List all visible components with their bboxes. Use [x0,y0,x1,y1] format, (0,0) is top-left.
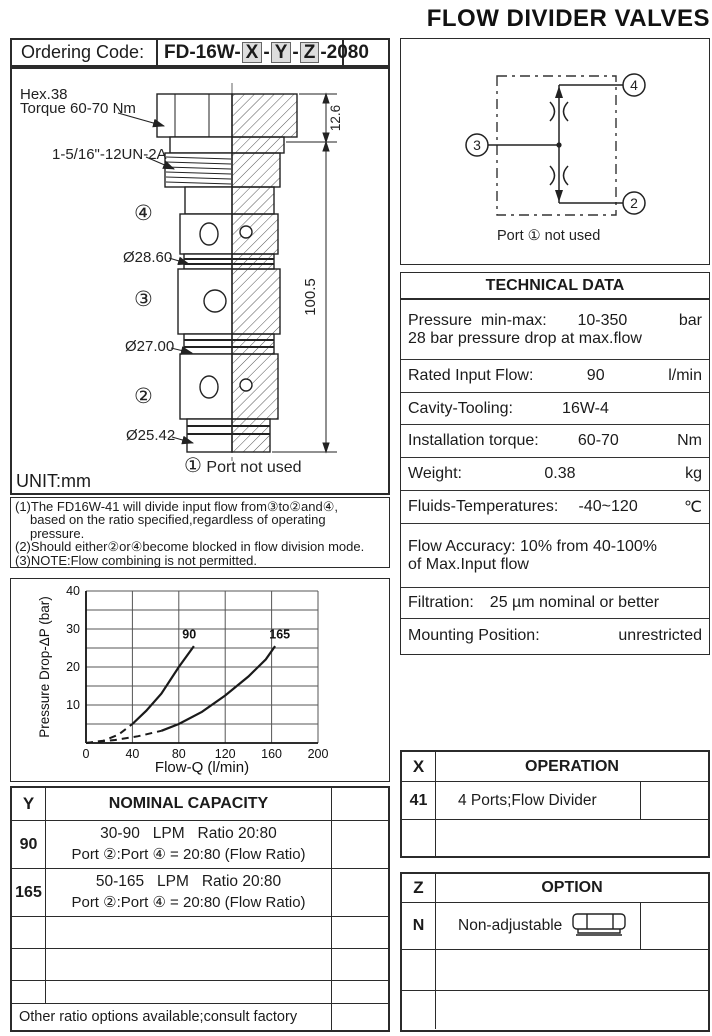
y-row-code: 90 [12,821,46,868]
port-4-label: ④ [134,201,153,226]
schematic-port-4: 4 [630,77,638,93]
y-footer-empty-cell [331,1004,388,1030]
diameter-3-label: Ø25.42 [126,427,175,444]
y-row-empty-cell [331,821,388,868]
y-tick-label: 40 [66,584,80,598]
tech-row-cavity: Cavity-Tooling:16W-4 [401,393,709,425]
diameter-2-label: Ø27.00 [125,338,174,355]
curve-label-165: 165 [269,628,290,642]
technical-data-header: TECHNICAL DATA [401,273,709,300]
tech-unit: Nm [658,432,702,450]
curve-dashed-90 [86,724,132,743]
z-empty-code-cell [402,991,436,1029]
y-tick-label: 10 [66,698,80,712]
z-empty-row [436,950,708,990]
tech-value: -40~120 [558,498,658,516]
chart-y-axis-label: Pressure Drop-ΔP (bar) [37,596,52,738]
x-operation-table: X OPERATION 41 4 Ports;Flow Divider [400,750,710,858]
x-tick-label: 40 [125,747,139,761]
chart-x-axis-label: Flow-Q (l/min) [155,759,249,776]
tech-value: unrestricted [540,627,702,645]
z-row-description: Non-adjustable [436,903,640,949]
tech-unit: l/min [658,367,702,385]
x-tick-label: 0 [83,747,90,761]
x-row-code: 41 [402,782,436,819]
y-nominal-capacity-table: Y NOMINAL CAPACITY 90 30-90 LPM Ratio 20… [10,786,390,1032]
ordering-x-placeholder: X [242,42,263,64]
x-empty-code-cell [402,820,436,856]
y-row-capacity: 30-90 LPM Ratio 20:80 [100,824,277,845]
x-tick-label: 80 [172,747,186,761]
junction-dot [556,142,561,147]
schematic-port-2: 2 [630,195,638,211]
flow-chart-panel: Pressure Drop-ΔP (bar) Flow-Q (l/min) 04… [10,578,390,782]
port-3-label: ③ [134,287,153,312]
ordering-y-placeholder: Y [271,42,292,64]
tech-label: Flow Accuracy: 10% from 40-100% [408,538,657,556]
y-empty-code-cell [12,981,46,1003]
y-empty-right-cell [331,949,388,980]
y-tick-label: 20 [66,660,80,674]
x-tick-label: 160 [261,747,282,761]
tech-label: Cavity-Tooling: [408,400,513,418]
curve-label-90: 90 [182,628,196,642]
tech-row-torque: Installation torque:60-70Nm [401,425,709,458]
dim-total-height-text: 100.5 [302,278,319,316]
ordering-code-value: FD-16W-X-Y-Z-2080 [158,40,344,65]
port-1-note: ① Port not used [184,453,302,478]
z-row-code: N [402,903,436,949]
y-code-header: Y [12,788,46,820]
y-row-empty-cell [331,869,388,916]
dash: - [292,42,298,64]
schematic-flow-lines [488,85,623,203]
dash: - [263,42,269,64]
y-tick-label: 30 [66,622,80,636]
schematic-port-3: 3 [473,137,481,153]
z-row-empty-cell [640,903,708,949]
schematic-port-circles [466,74,645,214]
z-row-option-text: Non-adjustable [458,917,562,935]
page-title: FLOW DIVIDER VALVES [427,5,710,33]
tech-row-weight: Weight:0.38kg [401,458,709,491]
tech-value: 90 [533,367,658,385]
tech-row-mounting: Mounting Position:unrestricted [401,619,709,652]
note-line: (1)The FD16W-41 will divide input flow f… [15,500,385,513]
notes-panel: (1)The FD16W-41 will divide input flow f… [10,497,390,568]
y-empty-row [46,949,331,980]
y-empty-code-cell [12,949,46,980]
y-table-title: NOMINAL CAPACITY [46,788,331,820]
tech-value: 25 µm nominal or better [490,594,659,612]
ordering-prefix: FD-16W- [164,42,241,64]
tech-unit: ℃ [658,497,702,517]
tech-row-filtration: Filtration:25 µm nominal or better [401,588,709,619]
tech-label: Fluids-Temperatures: [408,498,558,516]
curve-90 [132,646,194,724]
x-empty-row [436,820,708,856]
tech-row-rated-flow: Rated Input Flow:90l/min [401,360,709,393]
y-empty-right-cell [331,917,388,948]
y-row-ratio: Port ②:Port ④ = 20:80 (Flow Ratio) [71,893,305,913]
tech-label: Mounting Position: [408,627,540,645]
z-option-table: Z OPTION N Non-adjustable [400,872,710,1032]
z-code-header: Z [402,874,436,902]
tech-label: Installation torque: [408,432,539,450]
y-empty-row [46,981,331,1003]
pressure-drop-chart: Pressure Drop-ΔP (bar) Flow-Q (l/min) 04… [11,579,387,779]
y-row-capacity: 50-165 LPM Ratio 20:80 [96,872,281,893]
ordering-empty-cell [344,40,388,65]
datasheet-page: { "page_title": "FLOW DIVIDER VALVES", "… [0,0,712,1036]
y-empty-right-cell [331,981,388,1003]
z-empty-code-cell [402,950,436,990]
x-row-empty-cell [640,782,708,819]
note-line: based on the ratio specified,regardless … [15,513,385,526]
x-row-description: 4 Ports;Flow Divider [436,782,640,819]
tech-note: 28 bar pressure drop at max.flow [408,330,702,348]
x-table-title: OPERATION [436,752,708,781]
tech-label: Weight: [408,465,462,483]
tech-row-flow-accuracy: Flow Accuracy: 10% from 40-100% of Max.I… [401,524,709,588]
z-empty-row [436,991,708,1029]
unit-label: UNIT:mm [16,471,91,492]
y-row-description: 50-165 LPM Ratio 20:80 Port ②:Port ④ = 2… [46,869,331,916]
hex-note-line2: Torque 60-70 Nm [20,100,136,117]
hydraulic-schematic-panel: 4 2 3 Port ① not used [400,38,710,265]
tech-unit: bar [658,312,702,330]
note-line: (3)NOTE:Flow combining is not permitted. [15,554,385,567]
technical-data-table: TECHNICAL DATA Pressure min-max:10-350ba… [400,272,710,655]
valve-body [157,83,297,461]
tech-value: 60-70 [539,432,658,450]
hydraulic-schematic: 4 2 3 Port ① not used [401,39,707,262]
y-row-ratio: Port ②:Port ④ = 20:80 (Flow Ratio) [71,845,305,865]
tech-label: Rated Input Flow: [408,367,533,385]
note-line: pressure. [15,527,385,540]
y-header-empty-cell [331,788,388,820]
tech-row-temperature: Fluids-Temperatures:-40~120℃ [401,491,709,524]
y-empty-code-cell [12,917,46,948]
tech-note: of Max.Input flow [408,556,702,574]
tech-label: Pressure min-max: [408,312,547,330]
ordering-code-box: Ordering Code: FD-16W-X-Y-Z-2080 [10,38,390,67]
dim-hex-height-text: 12.6 [328,105,343,131]
x-code-header: X [402,752,436,781]
port-2-label: ② [134,384,153,409]
tech-value: 16W-4 [513,400,658,418]
tech-value: 10-350 [547,312,658,330]
tech-value: 0.38 [462,465,658,483]
thread-note: 1-5/16"-12UN-2A [52,146,167,163]
note-line: (2)Should either②or④become blocked in fl… [15,540,385,553]
z-table-title: OPTION [436,874,708,902]
y-table-footer: Other ratio options available;consult fa… [12,1009,331,1025]
valve-cross-section: 12.6 100.5 [12,69,388,493]
x-tick-label: 120 [215,747,236,761]
port-1-label: ① [184,455,202,477]
y-row-code: 165 [12,869,46,916]
ordering-z-placeholder: Z [300,42,320,64]
port-1-note-text: Port not used [206,459,301,476]
tech-unit: kg [658,465,702,483]
schematic-caption: Port ① not used [497,228,600,244]
x-tick-label: 200 [308,747,329,761]
curve-dashed-165 [86,731,161,743]
diameter-1-label: Ø28.60 [123,249,172,266]
ordering-code-label: Ordering Code: [12,40,158,65]
tech-row-pressure: Pressure min-max:10-350bar 28 bar pressu… [401,300,709,360]
hex-plug-icon [570,911,632,941]
valve-drawing-panel: 12.6 100.5 Hex.38 Torque 60-70 Nm 1-5/16… [10,67,390,495]
y-empty-row [46,917,331,948]
y-row-description: 30-90 LPM Ratio 20:80 Port ②:Port ④ = 20… [46,821,331,868]
tech-label: Filtration: [408,594,474,612]
